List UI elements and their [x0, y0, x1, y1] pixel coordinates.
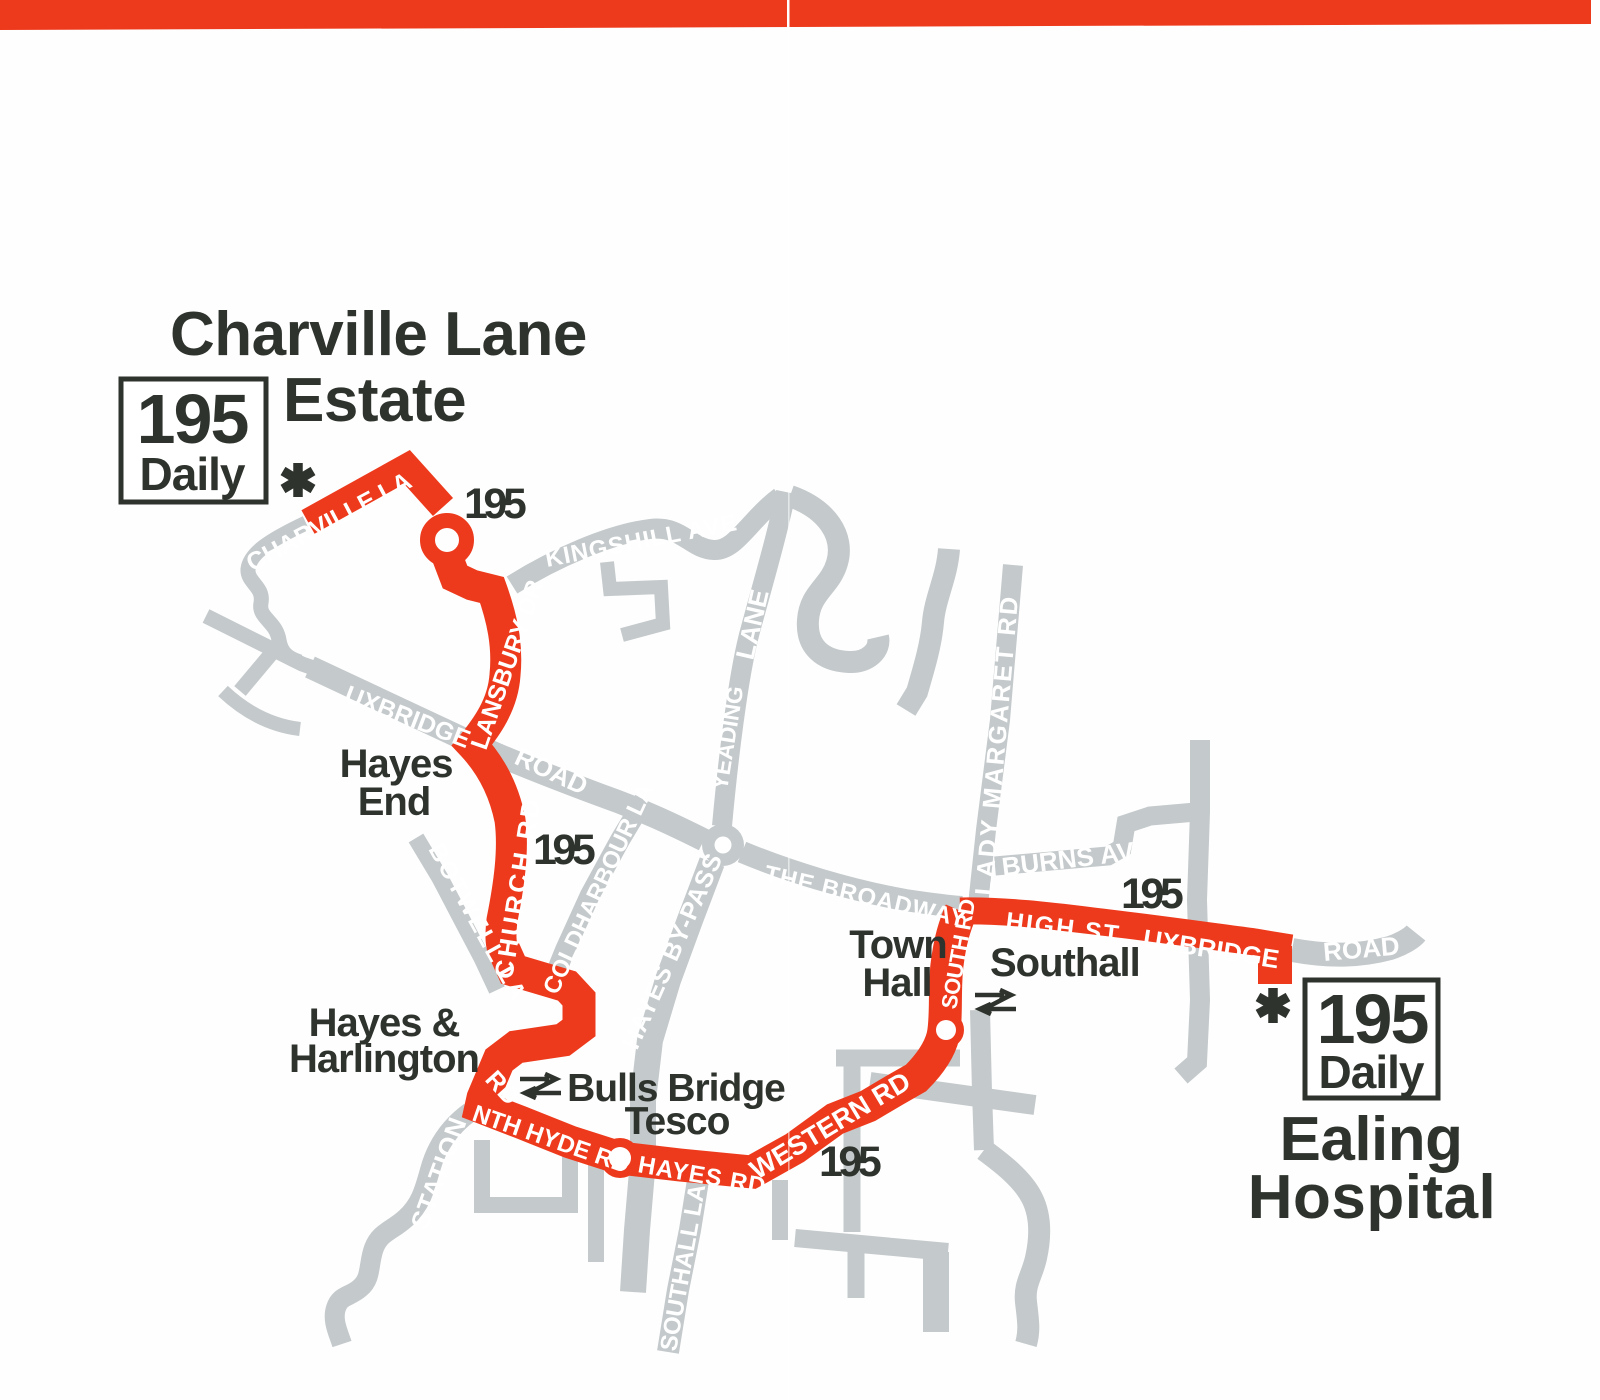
svg-text:Harlington: Harlington [289, 1037, 479, 1081]
svg-text:195: 195 [533, 826, 595, 874]
svg-text:Tesco: Tesco [625, 1100, 730, 1143]
svg-text:195: 195 [464, 480, 526, 528]
svg-text:195: 195 [1121, 870, 1183, 918]
svg-text:End: End [358, 780, 431, 824]
svg-text:Daily: Daily [140, 448, 246, 500]
svg-text:Estate: Estate [283, 366, 466, 435]
svg-text:Hospital: Hospital [1248, 1163, 1497, 1232]
svg-text:195: 195 [137, 380, 248, 458]
svg-text:Southall: Southall [990, 941, 1140, 985]
svg-text:Hall: Hall [862, 961, 931, 1005]
svg-text:195: 195 [819, 1138, 881, 1186]
svg-text:Charville Lane: Charville Lane [170, 300, 587, 369]
svg-text:Daily: Daily [1319, 1046, 1425, 1098]
